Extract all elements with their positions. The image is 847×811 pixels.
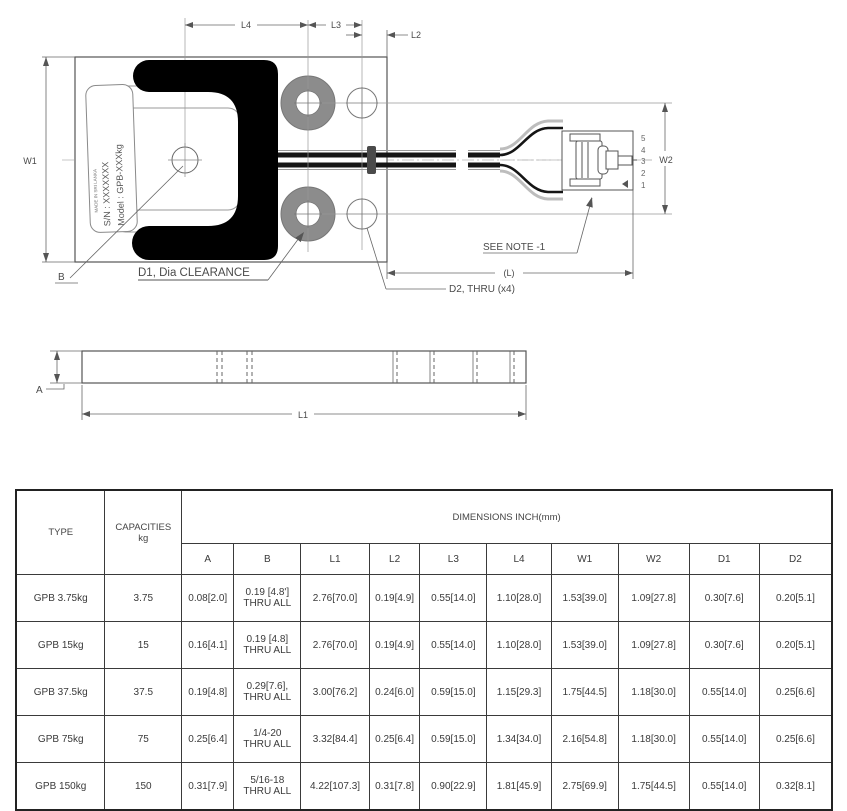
col-header-b: B <box>234 544 301 575</box>
dimension-l-cable: (L) <box>387 190 633 279</box>
dim-cell: 1.53[39.0] <box>551 622 618 669</box>
dim-cell: 1.09[27.8] <box>618 622 689 669</box>
dim-cell: 0.25[6.4] <box>182 716 234 763</box>
side-view-body <box>82 351 526 383</box>
dim-cell: 1.34[34.0] <box>487 716 551 763</box>
dim-cell: 0.19[4.8] <box>182 669 234 716</box>
col-header-w1: W1 <box>551 544 618 575</box>
table-row: GPB 3.75kg 3.75 0.08[2.0] 0.19 [4.8'] TH… <box>16 575 832 622</box>
table-header-row: TYPE CAPACITIES kg DIMENSIONS INCH(mm) <box>16 490 832 544</box>
dimension-w1: W1 <box>23 57 75 262</box>
dim-cell: 0.55[14.0] <box>420 575 487 622</box>
dimension-table: TYPE CAPACITIES kg DIMENSIONS INCH(mm) A… <box>15 489 833 811</box>
table-row: GPB 37.5kg 37.5 0.19[4.8] 0.29[7.6], THR… <box>16 669 832 716</box>
type-cell: GPB 75kg <box>16 716 105 763</box>
type-cell: GPB 37.5kg <box>16 669 105 716</box>
l3-label: L3 <box>331 20 341 30</box>
dim-cell: 0.55[14.0] <box>689 716 759 763</box>
cable-clamp <box>367 146 376 174</box>
side-view: A L1 <box>36 351 526 421</box>
col-header-w2: W2 <box>618 544 689 575</box>
w2-label: W2 <box>659 155 673 165</box>
dim-cell: 0.30[7.6] <box>689 575 759 622</box>
wire-black-top <box>500 128 563 155</box>
l4-label: L4 <box>241 20 251 30</box>
dimensions-header: DIMENSIONS INCH(mm) <box>182 490 832 544</box>
nameplate: Model : GPB-XXXkg S/N : XXXXXXX MADE IN … <box>85 84 137 233</box>
pin-label: 5 <box>641 134 646 143</box>
col-header-l4: L4 <box>487 544 551 575</box>
capacity-cell: 37.5 <box>105 669 182 716</box>
datasheet-page: Model : GPB-XXXkg S/N : XXXXXXX MADE IN … <box>0 0 847 805</box>
type-cell: GPB 15kg <box>16 622 105 669</box>
w1-label: W1 <box>23 156 37 166</box>
dim-cell: 1.10[28.0] <box>487 622 551 669</box>
dim-cell: 5/16-18 THRU ALL <box>234 763 301 811</box>
dim-cell: 0.20[5.1] <box>759 575 832 622</box>
capacity-cell: 15 <box>105 622 182 669</box>
dim-cell: 1.15[29.3] <box>487 669 551 716</box>
capacity-cell: 150 <box>105 763 182 811</box>
dim-cell: 1.75[44.5] <box>618 763 689 811</box>
pin-label: 4 <box>641 146 646 155</box>
col-header-d1: D1 <box>689 544 759 575</box>
a-label: A <box>36 385 43 396</box>
dim-cell: 3.00[76.2] <box>301 669 370 716</box>
dim-cell: 0.32[8.1] <box>759 763 832 811</box>
dim-cell: 1.10[28.0] <box>487 575 551 622</box>
d2-label: D2, THRU (x4) <box>449 284 515 295</box>
connector <box>562 131 637 190</box>
dim-cell: 0.31[7.9] <box>182 763 234 811</box>
dim-cell: 2.76[70.0] <box>301 575 370 622</box>
col-header-d2: D2 <box>759 544 832 575</box>
capacity-cell: 75 <box>105 716 182 763</box>
table-row: GPB 15kg 15 0.16[4.1] 0.19 [4.8] THRU AL… <box>16 622 832 669</box>
capacities-header: CAPACITIES kg <box>105 490 182 575</box>
dim-cell: 1.09[27.8] <box>618 575 689 622</box>
col-header-l2: L2 <box>369 544 420 575</box>
table-row: GPB 75kg 75 0.25[6.4] 1/4-20 THRU ALL 3.… <box>16 716 832 763</box>
dim-cell: 4.22[107.3] <box>301 763 370 811</box>
dim-cell: 0.59[15.0] <box>420 669 487 716</box>
dim-cell: 3.32[84.4] <box>301 716 370 763</box>
dim-cell: 0.20[5.1] <box>759 622 832 669</box>
dim-cell: 1.75[44.5] <box>551 669 618 716</box>
loadcell-drawing: Model : GPB-XXXkg S/N : XXXXXXX MADE IN … <box>0 0 847 470</box>
leader-arrow <box>586 197 593 208</box>
see-note-label: SEE NOTE -1 <box>483 242 546 253</box>
dim-cell: 0.24[6.0] <box>369 669 420 716</box>
l2-label: L2 <box>411 30 421 40</box>
type-header: TYPE <box>16 490 105 575</box>
dim-cell: 0.55[14.0] <box>689 669 759 716</box>
dim-cell: 0.59[15.0] <box>420 716 487 763</box>
dim-cell: 0.55[14.0] <box>689 763 759 811</box>
dim-cell: 1.18[30.0] <box>618 716 689 763</box>
pin-label: 1 <box>641 181 646 190</box>
dim-cell: 0.31[7.8] <box>369 763 420 811</box>
type-cell: GPB 3.75kg <box>16 575 105 622</box>
dimension-w2: W2 <box>652 103 680 214</box>
dim-cell: 0.90[22.9] <box>420 763 487 811</box>
dim-cell: 0.29[7.6], THRU ALL <box>234 669 301 716</box>
dim-cell: 0.19 [4.8'] THRU ALL <box>234 575 301 622</box>
d1-label: D1, Dia CLEARANCE <box>138 267 250 279</box>
col-header-l3: L3 <box>420 544 487 575</box>
l-cable-label: (L) <box>504 268 515 278</box>
pin-label: 3 <box>641 157 646 166</box>
dim-cell: 0.16[4.1] <box>182 622 234 669</box>
dimension-l4-l3-l2: L4 L3 L2 <box>185 18 421 57</box>
col-header-l1: L1 <box>301 544 370 575</box>
dim-cell: 0.08[2.0] <box>182 575 234 622</box>
dim-cell: 1.81[45.9] <box>487 763 551 811</box>
l1-label: L1 <box>298 410 308 420</box>
dim-cell: 0.25[6.4] <box>369 716 420 763</box>
dim-cell: 2.76[70.0] <box>301 622 370 669</box>
wire-black-bottom <box>500 165 563 192</box>
pin-label: 2 <box>641 169 646 178</box>
dim-cell: 0.19[4.9] <box>369 622 420 669</box>
dim-cell: 0.55[14.0] <box>420 622 487 669</box>
dim-cell: 1.18[30.0] <box>618 669 689 716</box>
dim-cell: 0.25[6.6] <box>759 716 832 763</box>
d2-callout: D2, THRU (x4) <box>367 228 515 295</box>
dim-cell: 0.25[6.6] <box>759 669 832 716</box>
dimension-a: A <box>36 351 82 396</box>
type-cell: GPB 150kg <box>16 763 105 811</box>
col-header-a: A <box>182 544 234 575</box>
b-label: B <box>58 272 65 283</box>
dimension-l1: L1 <box>82 385 526 421</box>
dim-cell: 2.75[69.9] <box>551 763 618 811</box>
top-view: Model : GPB-XXXkg S/N : XXXXXXX MADE IN … <box>23 18 680 295</box>
connector-pin-numbers: 5 4 3 2 1 <box>641 134 646 190</box>
capacity-cell: 3.75 <box>105 575 182 622</box>
dim-cell: 2.16[54.8] <box>551 716 618 763</box>
table-row: GPB 150kg 150 0.31[7.9] 5/16-18 THRU ALL… <box>16 763 832 811</box>
dim-cell: 0.19 [4.8] THRU ALL <box>234 622 301 669</box>
see-note-callout: SEE NOTE -1 <box>483 197 593 253</box>
dim-cell: 0.19[4.9] <box>369 575 420 622</box>
dim-cell: 0.30[7.6] <box>689 622 759 669</box>
dim-cell: 1/4-20 THRU ALL <box>234 716 301 763</box>
dim-cell: 1.53[39.0] <box>551 575 618 622</box>
